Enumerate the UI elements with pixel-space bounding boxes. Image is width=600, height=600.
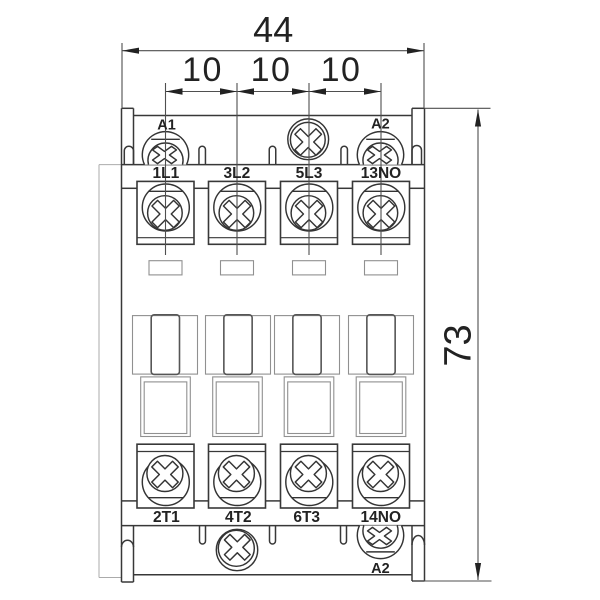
svg-text:4T2: 4T2 bbox=[225, 509, 252, 526]
svg-text:5L3: 5L3 bbox=[296, 165, 323, 182]
svg-text:73: 73 bbox=[437, 324, 479, 366]
svg-text:3L2: 3L2 bbox=[224, 165, 251, 182]
svg-text:A2: A2 bbox=[371, 117, 390, 133]
svg-text:A1: A1 bbox=[157, 118, 176, 134]
svg-text:A2: A2 bbox=[371, 561, 390, 577]
svg-text:14NO: 14NO bbox=[361, 509, 402, 526]
svg-text:1L1: 1L1 bbox=[153, 165, 180, 182]
svg-text:44: 44 bbox=[253, 9, 293, 50]
svg-text:2T1: 2T1 bbox=[153, 509, 180, 526]
svg-text:13NO: 13NO bbox=[361, 165, 402, 182]
svg-text:10: 10 bbox=[321, 51, 362, 89]
svg-text:10: 10 bbox=[182, 51, 223, 89]
svg-text:10: 10 bbox=[251, 51, 292, 89]
svg-text:6T3: 6T3 bbox=[293, 509, 320, 526]
